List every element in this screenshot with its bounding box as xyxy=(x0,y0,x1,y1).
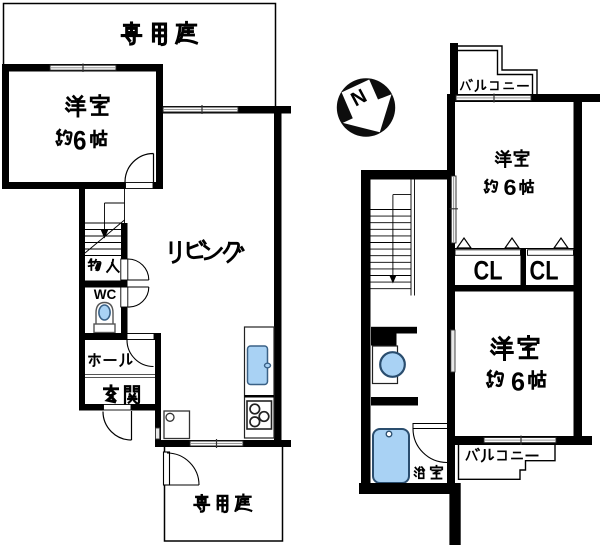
svg-text:6: 6 xyxy=(73,126,87,156)
svg-text:6: 6 xyxy=(511,367,525,397)
svg-text:6: 6 xyxy=(504,175,517,200)
svg-text:CL: CL xyxy=(530,256,559,286)
svg-text:CL: CL xyxy=(474,256,503,286)
svg-text:WC: WC xyxy=(94,287,117,302)
